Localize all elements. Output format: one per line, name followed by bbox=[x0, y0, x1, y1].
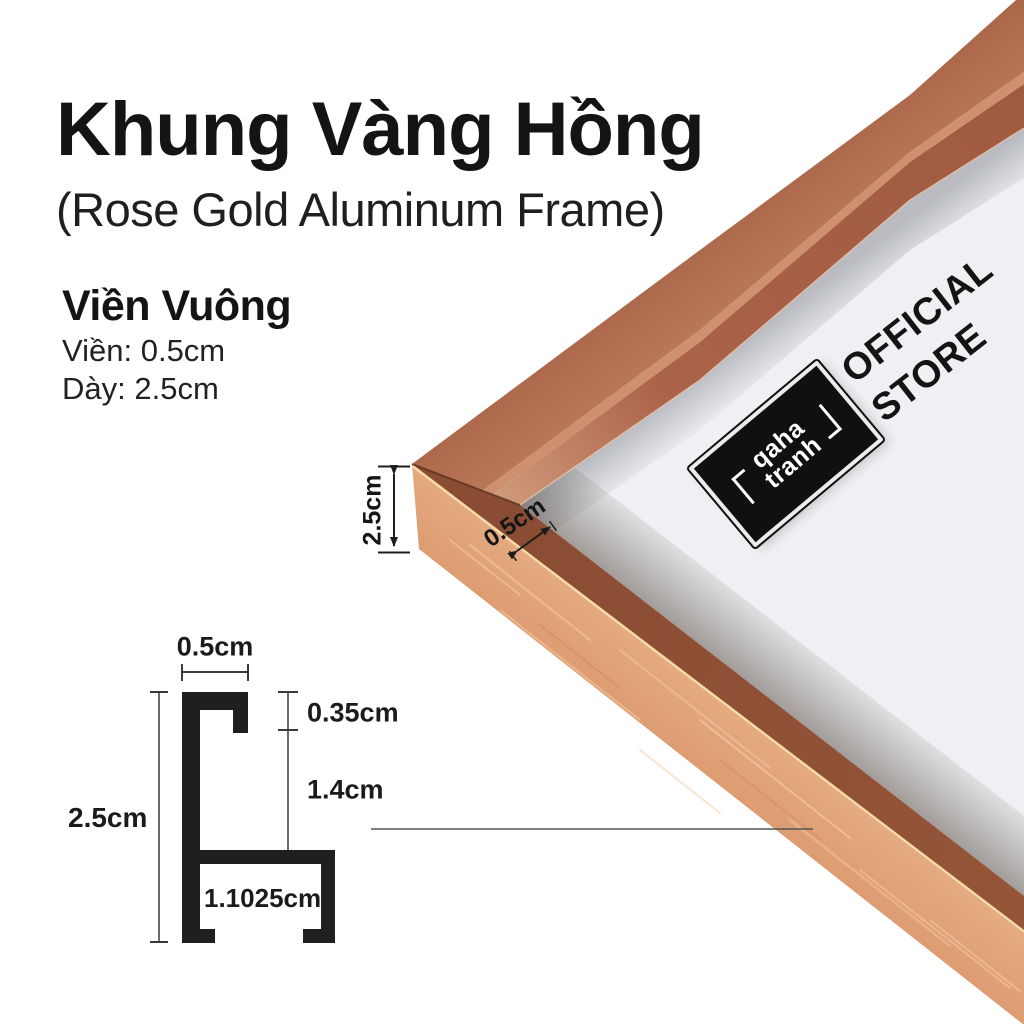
dim-label-inner-height: 1.4cm bbox=[307, 777, 384, 804]
page-title: Khung Vàng Hồng bbox=[56, 92, 704, 168]
badge-corner-bracket-right-icon bbox=[808, 404, 841, 440]
dim-label-total-height: 2.5cm bbox=[68, 804, 147, 832]
page-subtitle: (Rose Gold Aluminum Frame) bbox=[56, 186, 665, 233]
dim-label-top-width: 0.5cm bbox=[177, 634, 254, 661]
spec-heading: Viền Vuông bbox=[62, 283, 291, 330]
spec-thickness-value: Dày: 2.5cm bbox=[62, 372, 219, 406]
dim-label-bottom-width: 1.1025cm bbox=[204, 885, 321, 911]
photo-thickness-label: 2.5cm bbox=[361, 475, 386, 546]
dim-label-lip-height: 0.35cm bbox=[307, 700, 399, 727]
badge-corner-bracket-left-icon bbox=[731, 469, 764, 505]
product-infographic: Khung Vàng Hồng (Rose Gold Aluminum Fram… bbox=[0, 0, 1024, 1024]
badge-brand-text: qaha tranh bbox=[746, 415, 826, 493]
spec-border-value: Viền: 0.5cm bbox=[62, 334, 225, 368]
